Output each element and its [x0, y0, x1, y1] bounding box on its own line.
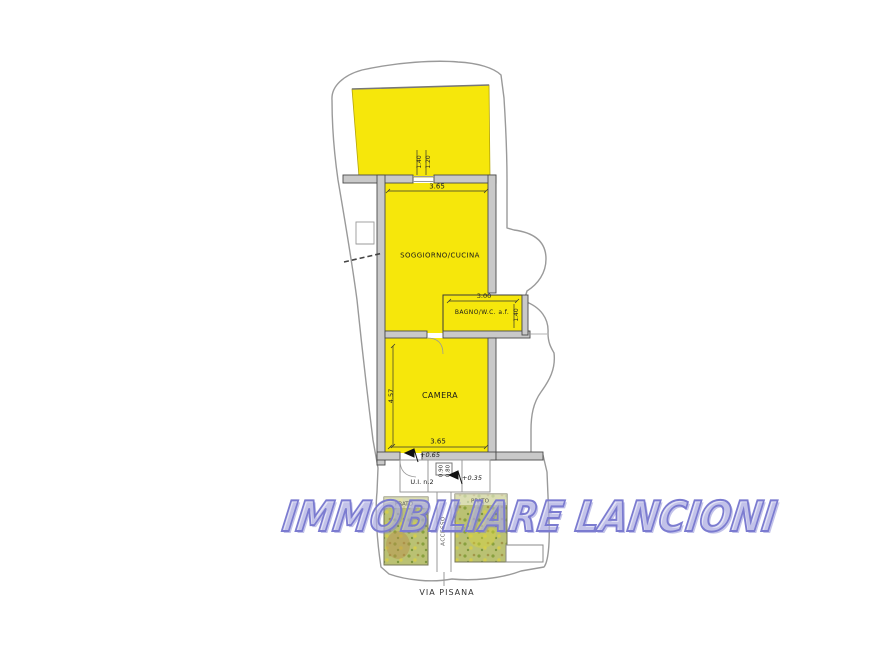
street-label: VIA PISANA [419, 589, 474, 597]
level-porch: +0.35 [462, 475, 482, 482]
agency-watermark: IMMOBILIARE LANCIONI [280, 492, 692, 541]
dim-bagno-width: 3.00 [477, 293, 491, 300]
unit-label: U.I. n.2 [410, 479, 433, 486]
dim-camera-width: 3.65 [430, 439, 446, 446]
room-label-camera: CAMERA [422, 392, 458, 400]
dim-opening-width: 1.40 [417, 155, 423, 168]
dim-camera-height: 4.57 [388, 389, 395, 403]
dim-opening-depth: 1.20 [426, 155, 432, 168]
level-entrance: +0.65 [420, 452, 440, 459]
floorplan-page: 1.40 1.20 3.65 SOGGIORNO/CUCINA 3.00 BAG… [0, 0, 893, 670]
dim-porch-b: 0.80 [446, 465, 452, 477]
room-label-soggiorno: SOGGIORNO/CUCINA [400, 253, 480, 260]
floorplan-drawing [0, 0, 893, 670]
dim-porch-a: 0.90 [439, 465, 445, 477]
dim-bagno-depth: 1.40 [514, 308, 520, 321]
dim-soggiorno-width: 3.65 [429, 184, 445, 191]
room-label-bagno: BAGNO/W.C. a.f. [455, 310, 509, 316]
